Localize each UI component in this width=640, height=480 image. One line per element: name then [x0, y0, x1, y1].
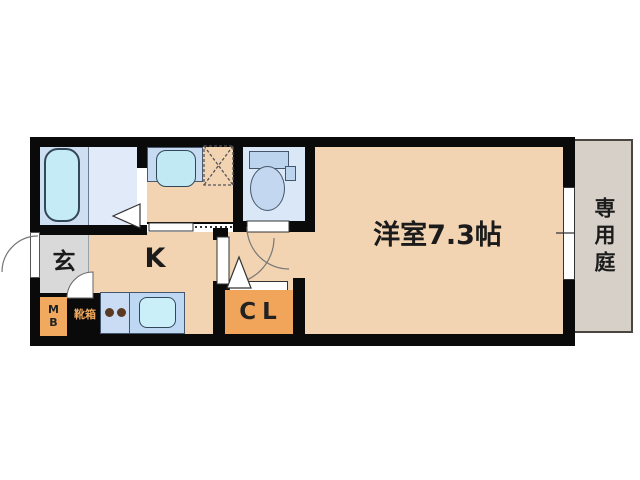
bathroom-floor-right	[88, 147, 137, 225]
wall-closet-right	[293, 278, 305, 334]
wall-right-lower	[563, 280, 575, 346]
kitchen-label: K	[125, 240, 185, 276]
wall-right-upper	[563, 137, 575, 187]
kitchen-sink	[139, 297, 176, 328]
closet-box: CL	[225, 290, 293, 334]
main-room-label: 洋室7.3帖	[330, 214, 545, 250]
wall-top	[30, 137, 575, 147]
private-garden-label: 専用庭	[575, 160, 633, 315]
meter-box-label: MB	[48, 304, 60, 329]
entrance-label: 玄	[43, 244, 85, 274]
shoe-box-label: 靴箱	[68, 296, 102, 332]
wall-toilet-right	[305, 137, 315, 232]
garden-window	[563, 187, 575, 280]
bathtub	[44, 148, 80, 222]
bathroom-door-opening	[137, 168, 147, 232]
meter-box: MB	[40, 297, 67, 336]
wall-hall-stub	[213, 228, 228, 240]
toilet-flush-handle	[285, 166, 296, 181]
wall-bath-washroom	[137, 137, 147, 168]
closet-label: CL	[235, 299, 283, 325]
kitchen-stove	[100, 292, 130, 334]
floorplan-canvas: 洋室7.3帖 K 玄 専用庭 CL MB 靴箱	[0, 0, 640, 480]
wall-bath-bottom	[30, 225, 147, 235]
wall-bottom	[30, 334, 575, 346]
stove-burner-icon	[117, 308, 126, 317]
stove-burner-icon	[105, 308, 114, 317]
wall-toilet-stub-left	[233, 221, 247, 232]
washbasin-bowl	[156, 150, 196, 187]
wall-left-upper	[30, 137, 40, 232]
toilet-bowl	[250, 166, 285, 211]
wall-washroom-toilet	[233, 137, 243, 232]
entry-door-leaf	[30, 232, 40, 278]
